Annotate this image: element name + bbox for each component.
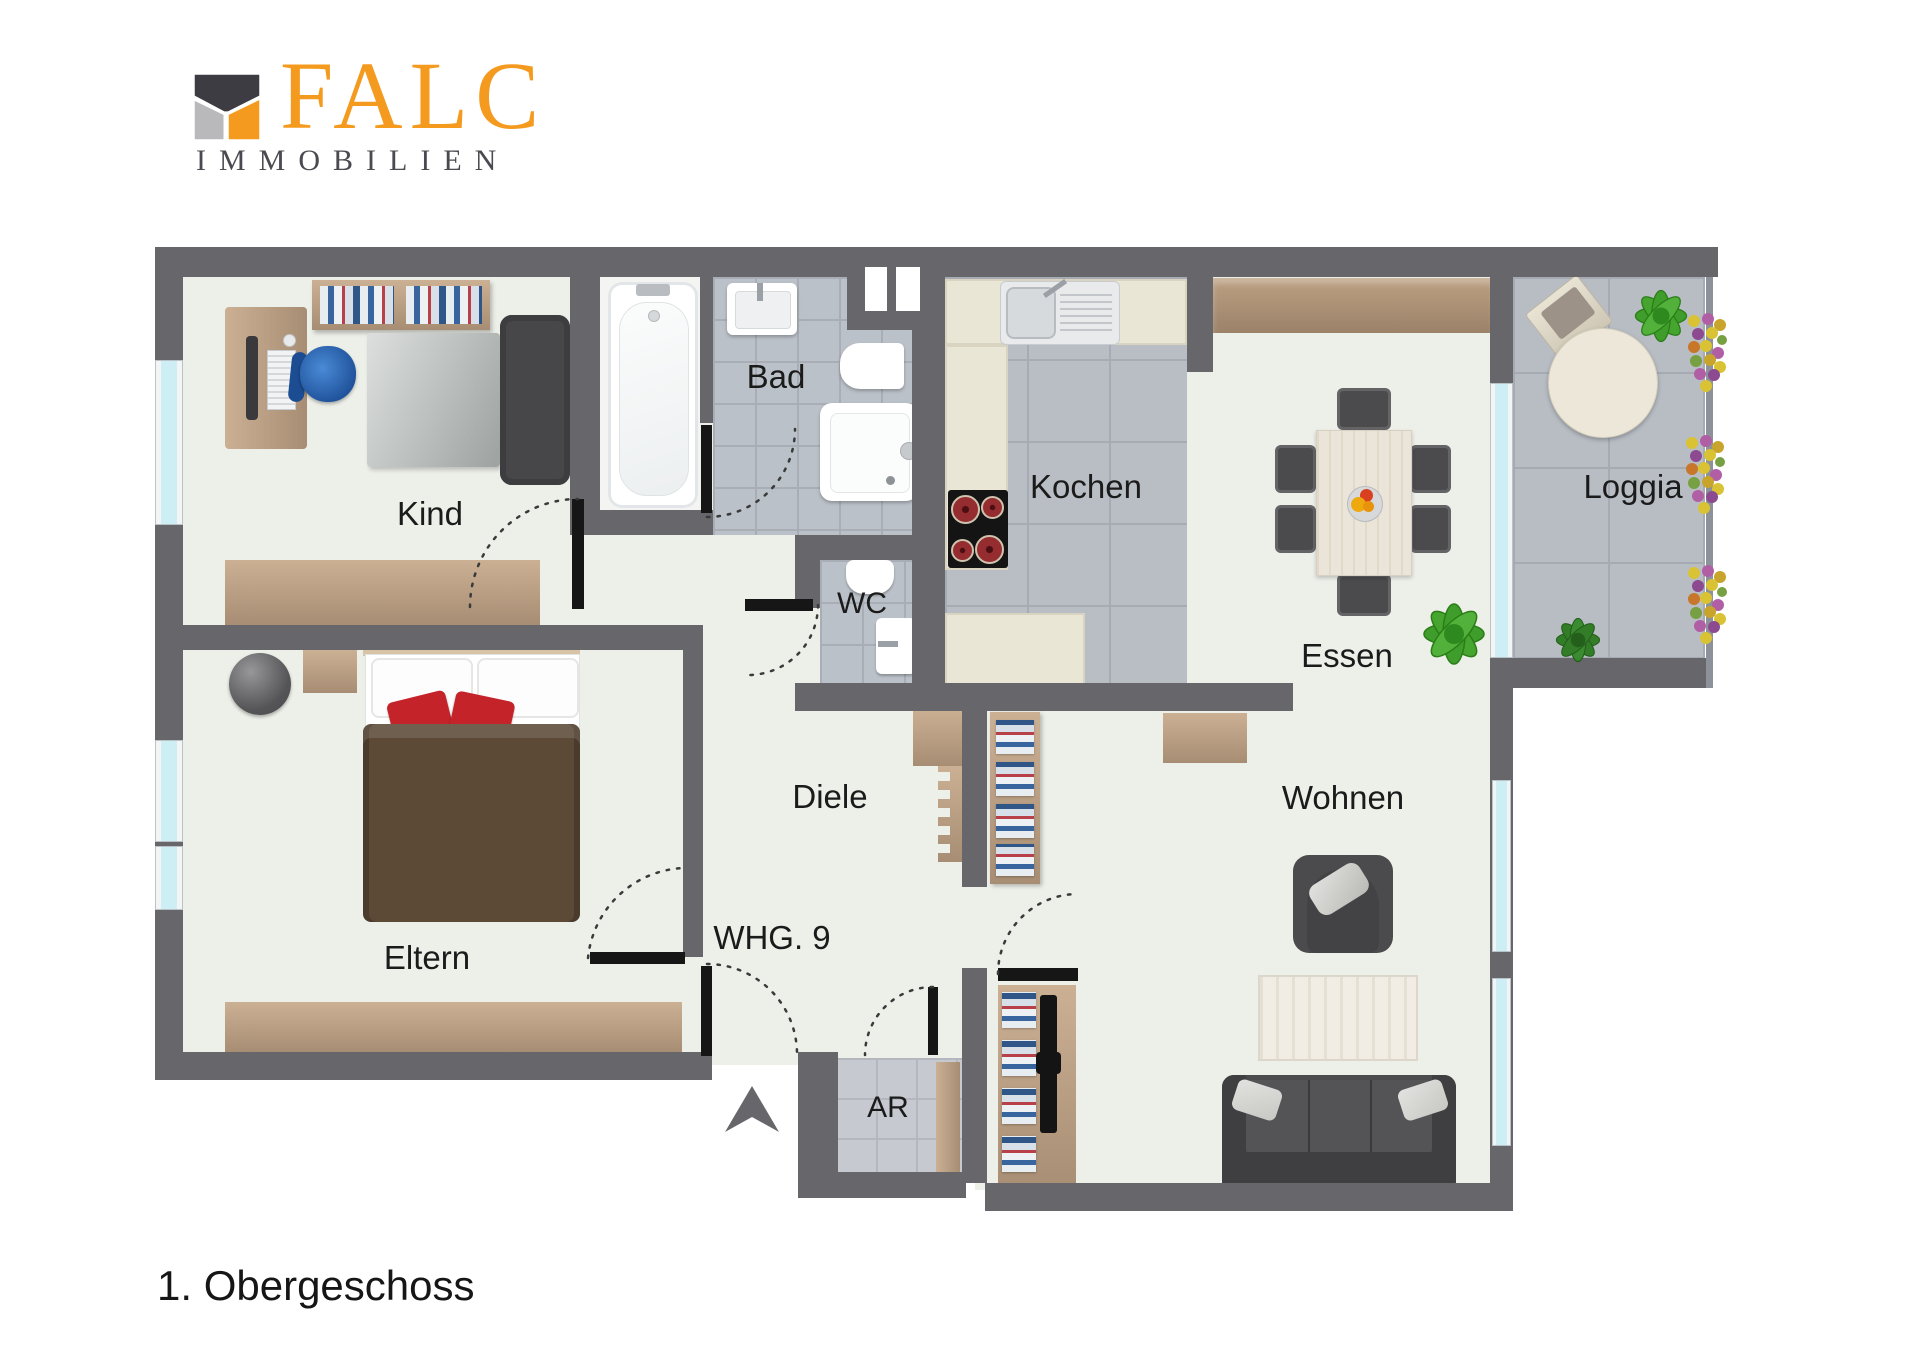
entrance-arrow-icon [725,1086,779,1132]
bed-kind-mattress [367,333,500,467]
room-label-bad: Bad [747,358,806,396]
wall-bad-wc [795,535,912,560]
room-label-ar: AR [867,1091,909,1125]
shaft-opening [896,267,920,311]
burner [951,495,980,524]
coffee-table [1258,975,1418,1061]
wall-right-essen [1490,277,1513,383]
nightstand [303,650,357,693]
wall-eltern-diele [683,625,703,957]
loggia-table [1548,328,1658,438]
books [996,844,1034,876]
burner [951,539,974,562]
room-label-kochen: Kochen [1030,468,1142,506]
burner [981,496,1004,519]
bathtub-drain [648,310,660,322]
door-bad [701,425,712,513]
rack-notch [938,844,950,853]
books [406,286,482,324]
books [996,762,1034,796]
window-eltern-2 [155,846,183,910]
window-wohnen-2 [1492,978,1511,1146]
door-wohnen [998,968,1078,981]
coat-rack [913,708,967,766]
shower-drain [886,476,895,485]
rack-notch [938,808,950,817]
kitchen-sink-drainer [1060,290,1112,336]
shower-tray [830,413,910,493]
bad-sink-basin [735,291,791,329]
room-label-kind: Kind [397,495,463,533]
shaft-opening [865,267,887,311]
wall-bath-kochen [912,277,945,683]
mouse [283,334,296,347]
room-label-diele: Diele [792,778,867,816]
ar-shelf [936,1062,960,1172]
dining-chair [1410,445,1451,493]
kitchen-counter-bottom [945,613,1085,688]
wardrobe-kind [225,560,540,625]
books [996,804,1034,838]
books [1002,1088,1036,1124]
fruit [1363,501,1374,512]
books [1002,1040,1036,1076]
wall-tub-right [700,277,713,423]
door-kind [572,499,584,609]
wall-diele-wohnen-lower [962,968,987,1183]
dining-chair [1410,505,1451,553]
door-entrance [701,966,712,1056]
wc-sink-faucet [878,641,898,647]
rack-notch [938,826,950,835]
wall-loggia-bottom [1490,658,1713,688]
rack-notch [938,772,950,781]
window-wohnen-1 [1492,780,1511,952]
desk-chair [300,346,356,402]
wall-tub-niche [570,510,713,535]
sideboard-wohnen [1163,713,1247,763]
rack-notch [938,790,950,799]
books [1002,992,1036,1028]
room-label-wc: WC [837,587,887,621]
books [996,720,1034,754]
dining-chair [1337,574,1391,616]
bathtub-faucet [636,284,670,296]
bed-duvet [363,724,580,922]
tv-mount [1036,1052,1061,1074]
dining-chair [1275,445,1316,493]
door-ar [928,987,938,1055]
wardrobe-eltern [225,1002,682,1052]
bathtub-basin [619,302,689,496]
bad-sink-faucet [757,283,763,301]
door-wc [745,599,813,611]
floor-plan-page: FALC IMMOBILIEN [0,0,1920,1357]
wall-kochen-essen [1187,247,1213,372]
brand-subtitle: IMMOBILIEN [196,144,509,178]
wall-bottom-left [155,1052,712,1080]
books [1002,1136,1036,1172]
window-kind [155,360,183,525]
wall-kind-eltern [155,625,700,650]
room-label-essen: Essen [1301,637,1393,675]
door-eltern [590,952,685,964]
room-label-wohnen: Wohnen [1282,779,1404,817]
bad-toilet [840,343,904,389]
pouf [229,653,291,715]
sideboard-essen [1213,278,1493,333]
dining-chair [1337,388,1391,430]
burner [975,535,1004,564]
brand-logo: FALC IMMOBILIEN [0,0,600,190]
window-loggia-glass [1490,383,1513,658]
monitor [246,336,258,420]
wall-wohnen-top [795,683,1293,711]
apartment-label: WHG. 9 [713,919,830,957]
floor-title: 1. Obergeschoss [157,1262,475,1310]
wall-kind-bath [570,277,600,510]
room-label-loggia: Loggia [1583,468,1682,506]
wall-diele-wohnen-upper [962,683,987,887]
wall-ar-bottom [798,1172,966,1198]
sofa-seam [1370,1080,1372,1154]
books [320,286,394,324]
window-eltern-1 [155,740,183,842]
bed-kind-headboard [500,315,570,485]
sofa-backrest [1246,1152,1432,1186]
sofa-seam [1308,1080,1310,1154]
brand-name: FALC [280,40,546,151]
wall-bottom-wohnen [985,1183,1513,1211]
wall-entrance-post [798,1052,838,1180]
falc-logo-icon [193,72,261,142]
loggia-railing [1706,277,1713,688]
dining-chair [1275,505,1316,553]
room-label-eltern: Eltern [384,939,470,977]
